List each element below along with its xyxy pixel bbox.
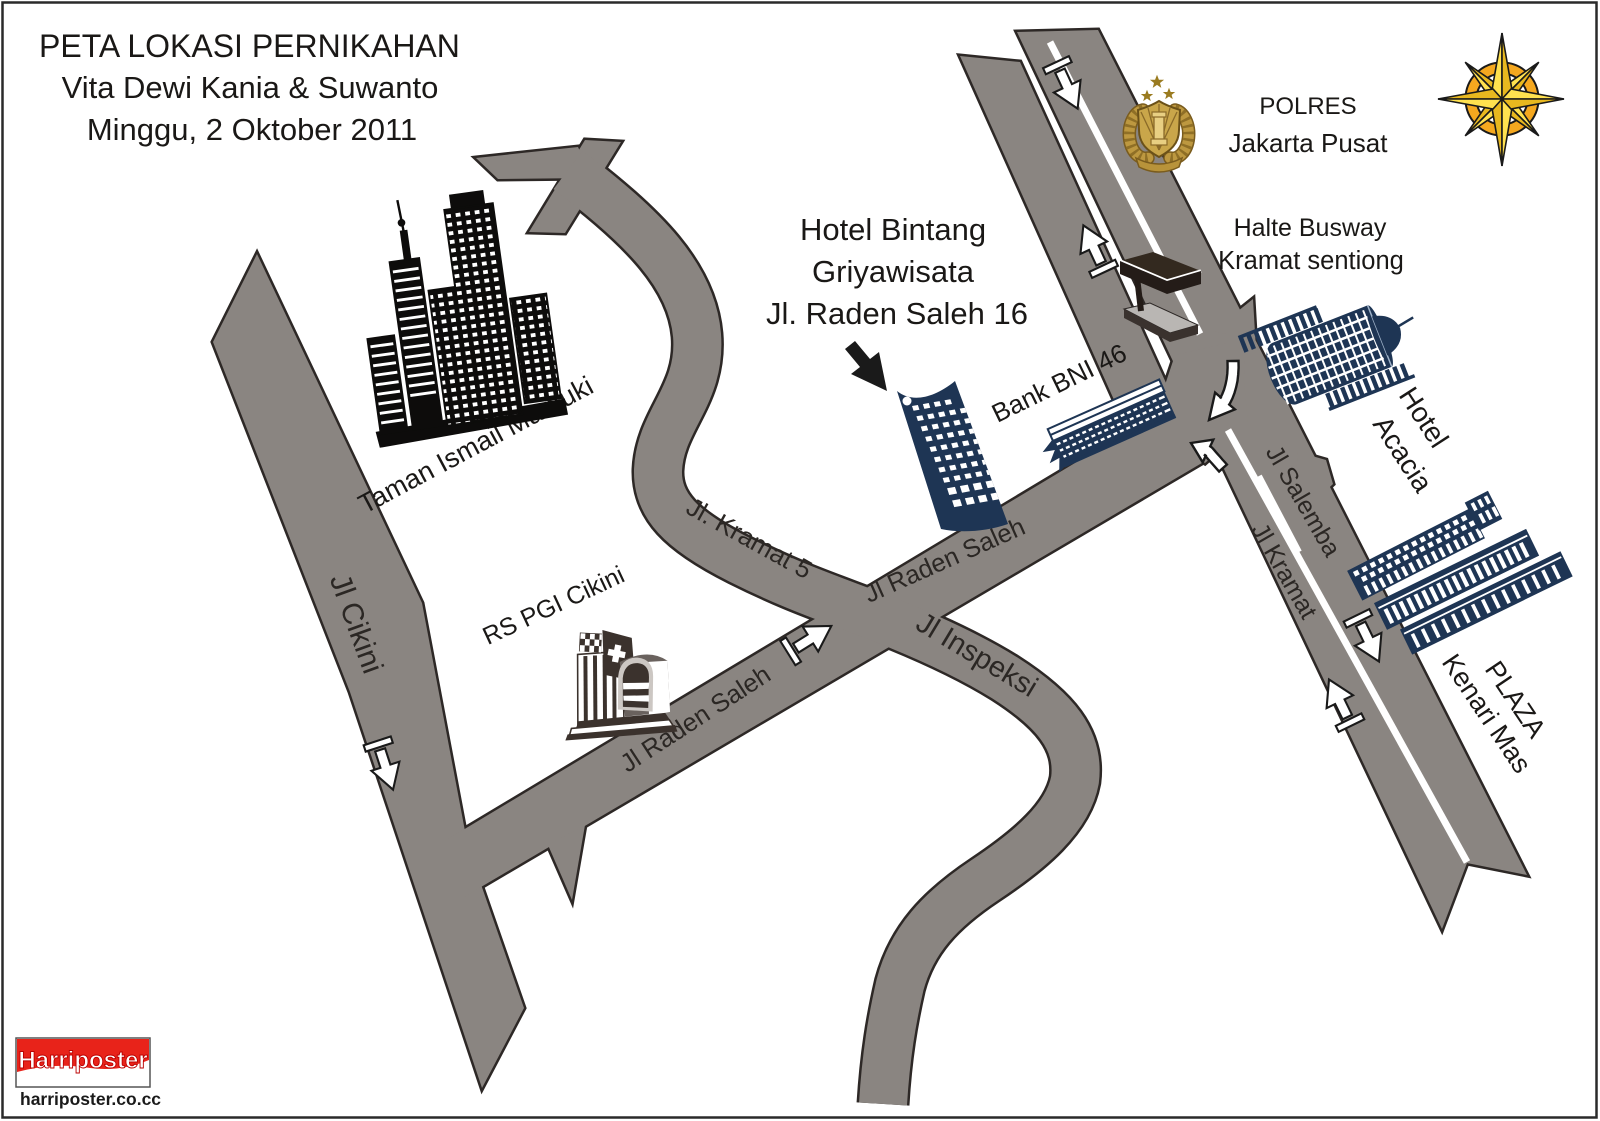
svg-text:Minggu, 2 Oktober 2011: Minggu, 2 Oktober 2011 bbox=[87, 112, 417, 147]
svg-text:Harriposter: Harriposter bbox=[18, 1047, 147, 1074]
svg-text:harriposter.co.cc: harriposter.co.cc bbox=[20, 1089, 161, 1109]
svg-text:POLRES: POLRES bbox=[1259, 93, 1356, 120]
svg-text:Kramat sentiong: Kramat sentiong bbox=[1218, 247, 1404, 275]
svg-text:Griyawisata: Griyawisata bbox=[812, 254, 975, 289]
svg-text:Jakarta Pusat: Jakarta Pusat bbox=[1229, 128, 1389, 158]
svg-text:Jl. Raden Saleh 16: Jl. Raden Saleh 16 bbox=[766, 296, 1028, 331]
svg-text:Hotel Bintang: Hotel Bintang bbox=[800, 212, 986, 247]
svg-text:PETA LOKASI PERNIKAHAN: PETA LOKASI PERNIKAHAN bbox=[39, 28, 460, 64]
svg-text:Halte Busway: Halte Busway bbox=[1234, 214, 1387, 242]
svg-text:Vita Dewi Kania & Suwanto: Vita Dewi Kania & Suwanto bbox=[62, 70, 439, 105]
